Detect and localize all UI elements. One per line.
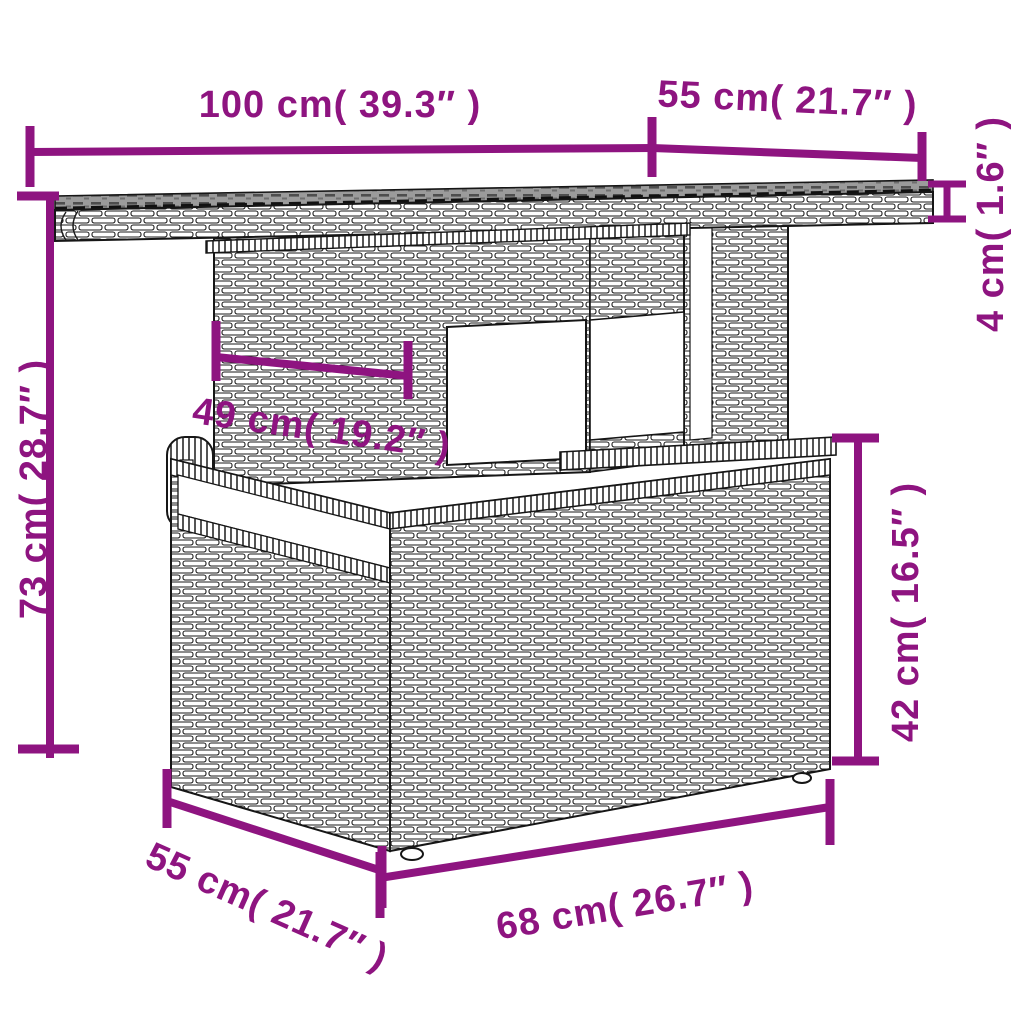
dimension-top-thickness: 4 cm( 1.6″ ): [928, 116, 1012, 332]
table-base: [167, 437, 830, 860]
dimension-base-height: 42 cm( 16.5″ ): [832, 438, 927, 762]
pedestal-window-side: [590, 312, 684, 440]
base-foot-right: [793, 773, 811, 783]
product-dimension-diagram: 100 cm( 39.3″ ) 55 cm( 21.7″ ) 4 cm( 1.6…: [0, 0, 1024, 1024]
dimension-top-depth: 55 cm( 21.7″ ): [652, 73, 922, 181]
base-foot-left: [401, 848, 423, 860]
table-top: [55, 180, 933, 253]
dim-top-width-label: 100 cm( 39.3″ ): [199, 84, 481, 126]
pedestal-window-opening: [447, 320, 586, 465]
dim-base-depth-label: 55 cm( 21.7″ ): [139, 835, 394, 979]
diagram-canvas: 100 cm( 39.3″ ) 55 cm( 21.7″ ) 4 cm( 1.6…: [0, 0, 1024, 1024]
dim-base-height-label: 42 cm( 16.5″ ): [885, 482, 927, 742]
table-illustration: [55, 180, 933, 860]
pedestal-column-slot: [690, 213, 712, 440]
dim-total-height-label: 73 cm( 28.7″ ): [13, 359, 55, 619]
dimension-top-width: 100 cm( 39.3″ ): [30, 84, 652, 187]
dim-top-thickness-label: 4 cm( 1.6″ ): [970, 116, 1012, 332]
dimension-total-height: 73 cm( 28.7″ ): [13, 196, 79, 758]
dim-top-depth-label: 55 cm( 21.7″ ): [657, 73, 919, 126]
dim-base-width-label: 68 cm( 26.7″ ): [493, 864, 757, 948]
